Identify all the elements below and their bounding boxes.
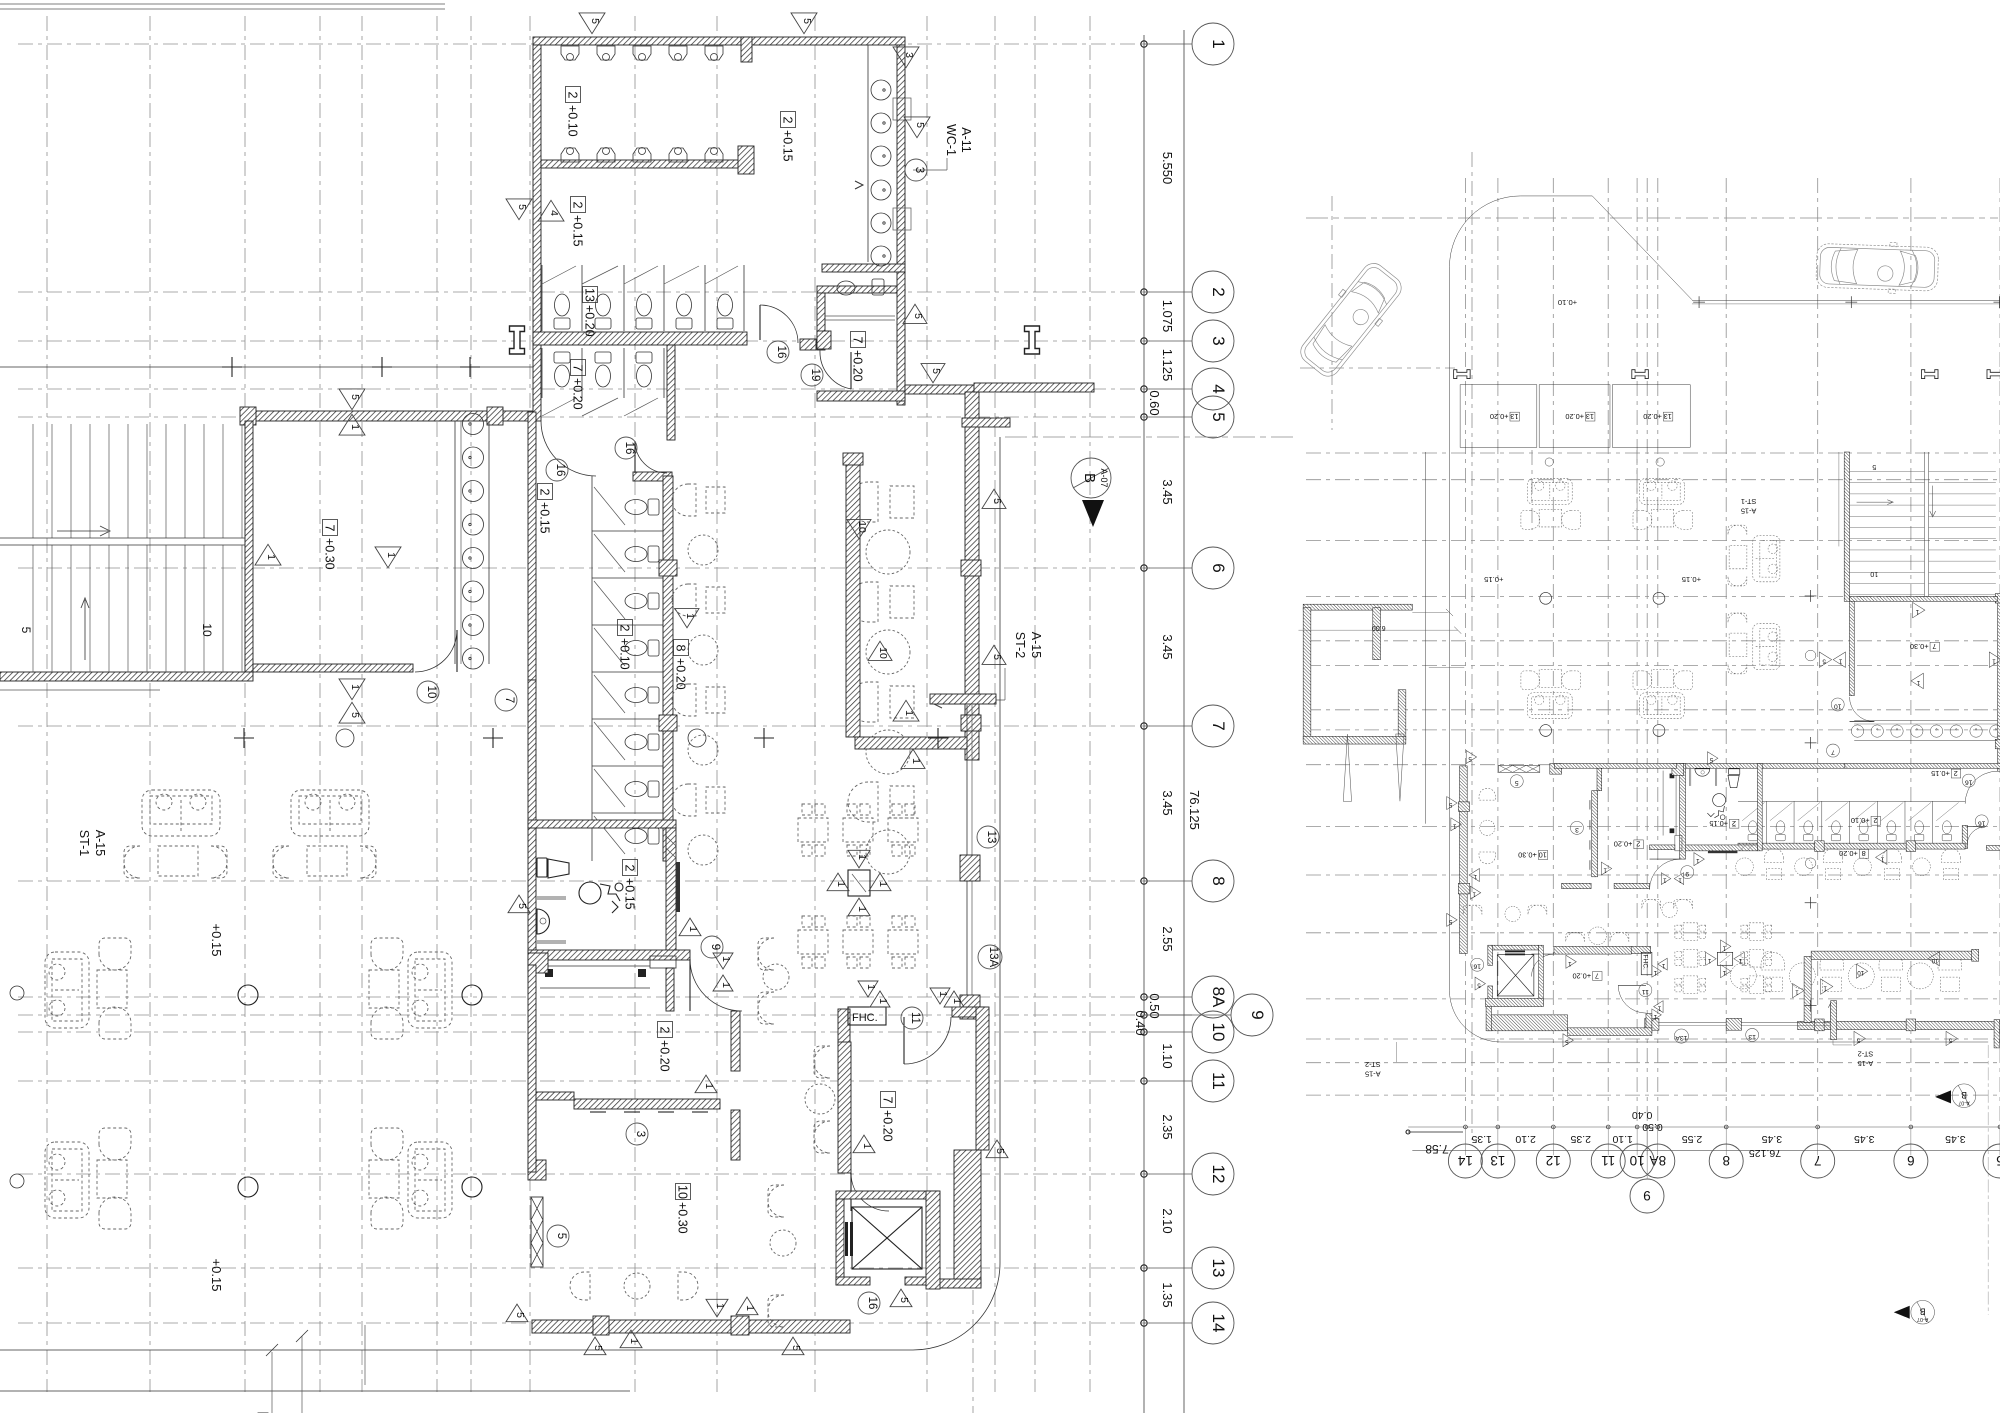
svg-text:1.10: 1.10: [1612, 1133, 1633, 1145]
svg-text:12: 12: [1209, 1165, 1228, 1184]
svg-text:5: 5: [1996, 1153, 2000, 1168]
svg-text:3.45: 3.45: [1160, 634, 1175, 659]
svg-text:3.45: 3.45: [1762, 1133, 1783, 1145]
svg-text:3: 3: [1209, 336, 1228, 345]
svg-text:7.58: 7.58: [1425, 1142, 1449, 1156]
svg-text:6: 6: [1907, 1153, 1915, 1168]
svg-text:9: 9: [1643, 1188, 1651, 1203]
svg-text:8A: 8A: [1209, 987, 1228, 1008]
svg-text:2.35: 2.35: [1570, 1133, 1591, 1145]
svg-text:10: 10: [1630, 1153, 1645, 1168]
svg-text:5.550: 5.550: [1160, 152, 1175, 185]
svg-text:1.10: 1.10: [1160, 1043, 1175, 1068]
svg-text:2.10: 2.10: [1515, 1133, 1536, 1145]
svg-text:3.45: 3.45: [1160, 790, 1175, 815]
svg-text:0.40: 0.40: [1632, 1109, 1653, 1121]
svg-text:1.125: 1.125: [1160, 349, 1175, 382]
svg-text:2.10: 2.10: [1160, 1208, 1175, 1233]
svg-text:6: 6: [1209, 563, 1228, 572]
svg-text:76.125: 76.125: [1749, 1147, 1781, 1159]
svg-text:10: 10: [1209, 1023, 1228, 1042]
svg-text:1.35: 1.35: [1160, 1282, 1175, 1307]
svg-text:1.35: 1.35: [1471, 1133, 1492, 1145]
svg-text:2.55: 2.55: [1160, 926, 1175, 951]
svg-text:5: 5: [1209, 412, 1228, 421]
svg-text:12: 12: [1546, 1153, 1561, 1168]
svg-text:4: 4: [1209, 384, 1228, 393]
svg-text:14: 14: [1209, 1314, 1228, 1333]
svg-text:1: 1: [1209, 39, 1228, 48]
svg-text:2.55: 2.55: [1682, 1133, 1703, 1145]
svg-text:13: 13: [1209, 1259, 1228, 1278]
svg-text:11: 11: [1209, 1072, 1228, 1090]
svg-text:0.60: 0.60: [1147, 390, 1162, 415]
svg-text:3.45: 3.45: [1160, 479, 1175, 504]
svg-text:9: 9: [1248, 1010, 1267, 1019]
svg-text:8: 8: [1722, 1153, 1730, 1168]
svg-text:76.125: 76.125: [1187, 790, 1202, 830]
svg-text:3.45: 3.45: [1854, 1133, 1875, 1145]
svg-text:2: 2: [1209, 287, 1228, 296]
svg-text:8A: 8A: [1650, 1153, 1667, 1168]
svg-text:3.45: 3.45: [1945, 1133, 1966, 1145]
svg-text:2.35: 2.35: [1160, 1114, 1175, 1139]
svg-text:13: 13: [1490, 1153, 1505, 1168]
svg-text:7: 7: [1209, 721, 1228, 730]
svg-text:8: 8: [1209, 876, 1228, 885]
svg-text:0.50: 0.50: [1642, 1121, 1663, 1133]
svg-text:1.075: 1.075: [1160, 300, 1175, 333]
svg-text:7: 7: [1814, 1153, 1822, 1168]
svg-text:11: 11: [1601, 1153, 1615, 1168]
svg-text:14: 14: [1457, 1153, 1473, 1168]
